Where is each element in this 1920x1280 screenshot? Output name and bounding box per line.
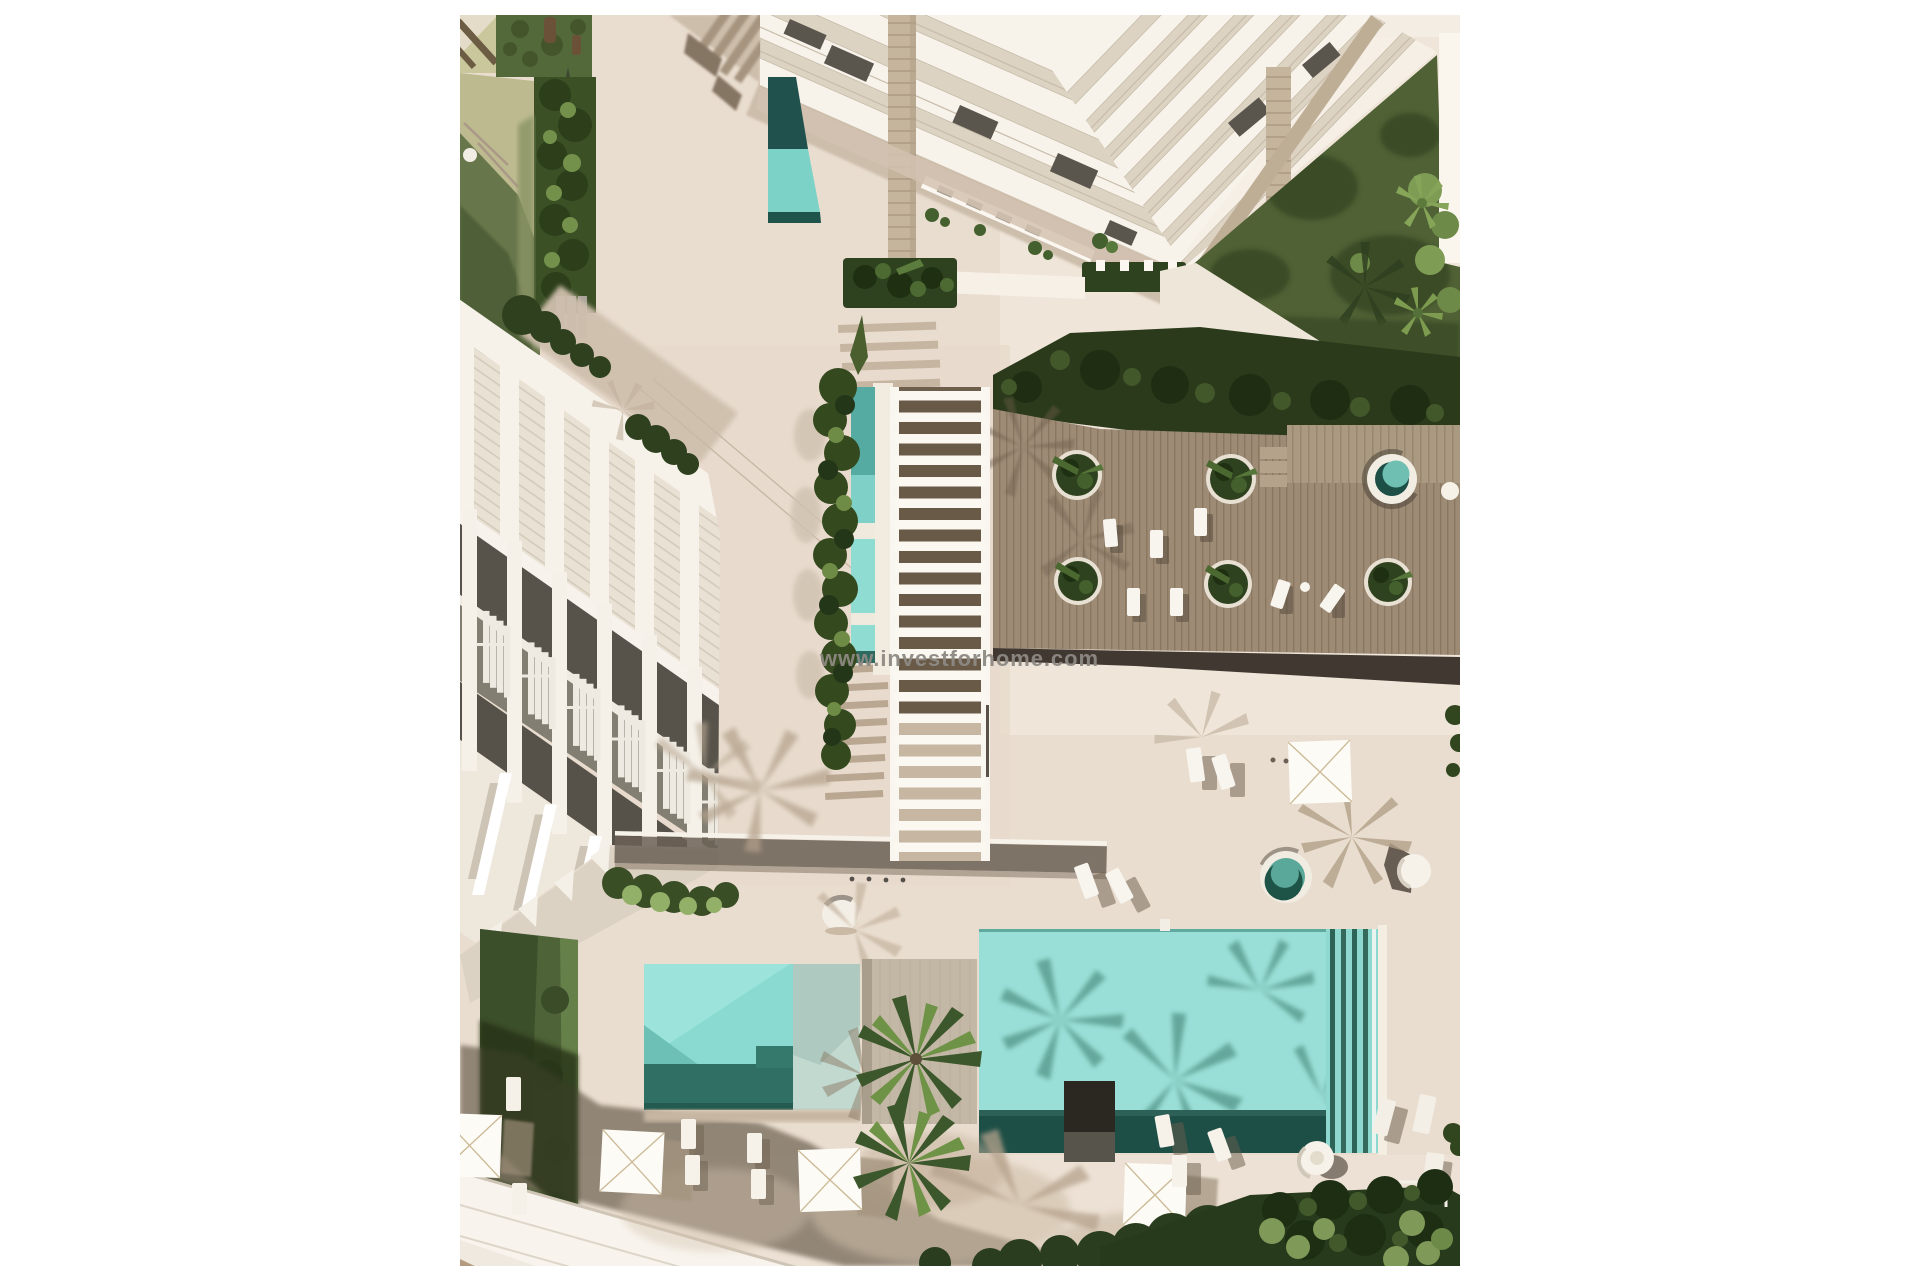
svg-text:www.investforhome.com: www.investforhome.com — [819, 646, 1098, 671]
